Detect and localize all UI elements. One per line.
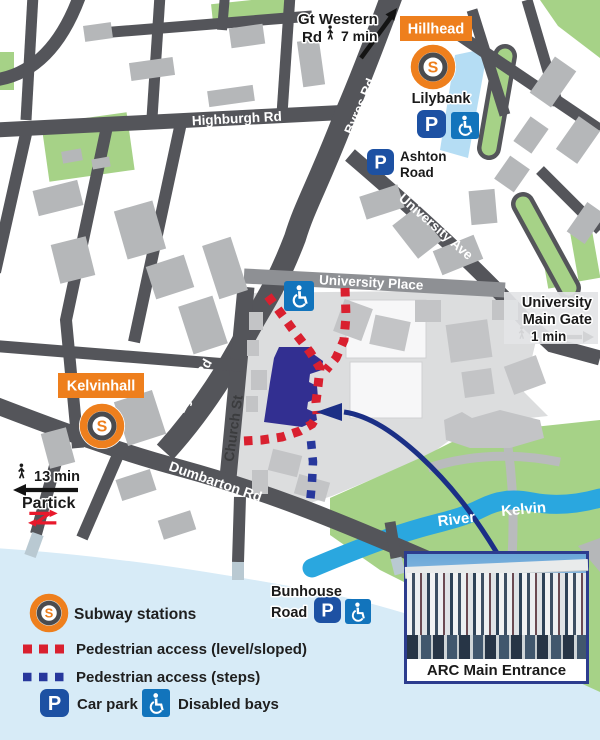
legend-subway-label: Subway stations	[74, 606, 196, 623]
badge-label-hillhead: Hillhead	[408, 22, 464, 38]
svg-text:P: P	[374, 152, 386, 173]
legend-car-park-label: Car park	[77, 696, 139, 713]
place-label-bunhouse-1: Bunhouse	[271, 584, 342, 600]
main-gate-label-1: University	[522, 295, 592, 311]
car-park-icon-legend: P	[40, 689, 69, 717]
gt-western-label-1: Gt Western	[298, 11, 378, 28]
svg-text:P: P	[425, 114, 438, 136]
disabled-icon-lilybank	[451, 112, 479, 139]
legend-level-label: Pedestrian access (level/sloped)	[76, 641, 307, 658]
subway-icon-hillhead: S	[410, 44, 456, 90]
photo-caption: ARC Main Entrance	[407, 659, 586, 681]
place-label-ashton-2: Road	[400, 165, 434, 180]
car-park-icon-bunhouse: P	[314, 597, 341, 623]
partick-time: 13 min	[34, 469, 80, 485]
campus-access-map: P P P P	[0, 0, 600, 740]
place-label-ashton-1: Ashton	[400, 149, 447, 164]
disabled-icon-bunhouse	[345, 599, 371, 624]
badge-label-kelvinhall: Kelvinhall	[67, 379, 136, 395]
svg-text:P: P	[321, 600, 333, 621]
legend-disabled-label: Disabled bays	[178, 696, 279, 713]
disabled-icon-legend	[142, 689, 170, 717]
photo-building-ground-floor	[407, 635, 586, 659]
svg-text:S: S	[428, 60, 439, 77]
subway-icon-legend: S	[33, 597, 65, 629]
car-park-icon-ashton: P	[367, 149, 394, 175]
subway-icon-kelvinhall: S	[79, 403, 125, 449]
car-park-icon-lilybank: P	[417, 110, 446, 138]
svg-text:S: S	[97, 419, 108, 436]
gt-western-label-2: Rd	[302, 29, 322, 46]
disabled-icon-university-place	[284, 281, 314, 311]
main-gate-label-2: Main Gate	[523, 312, 592, 328]
legend-steps-label: Pedestrian access (steps)	[76, 669, 260, 686]
place-label-lilybank: Lilybank	[412, 91, 472, 107]
svg-text:P: P	[48, 693, 61, 715]
photo-building-facade	[407, 573, 586, 635]
svg-text:S: S	[45, 606, 54, 621]
arc-entrance-photo: ARC Main Entrance	[404, 551, 589, 684]
place-label-bunhouse-2: Road	[271, 605, 307, 621]
gt-western-time: 7 min	[341, 28, 378, 44]
partick-label: Partick	[22, 495, 75, 512]
main-gate-time: 1 min	[531, 329, 566, 344]
